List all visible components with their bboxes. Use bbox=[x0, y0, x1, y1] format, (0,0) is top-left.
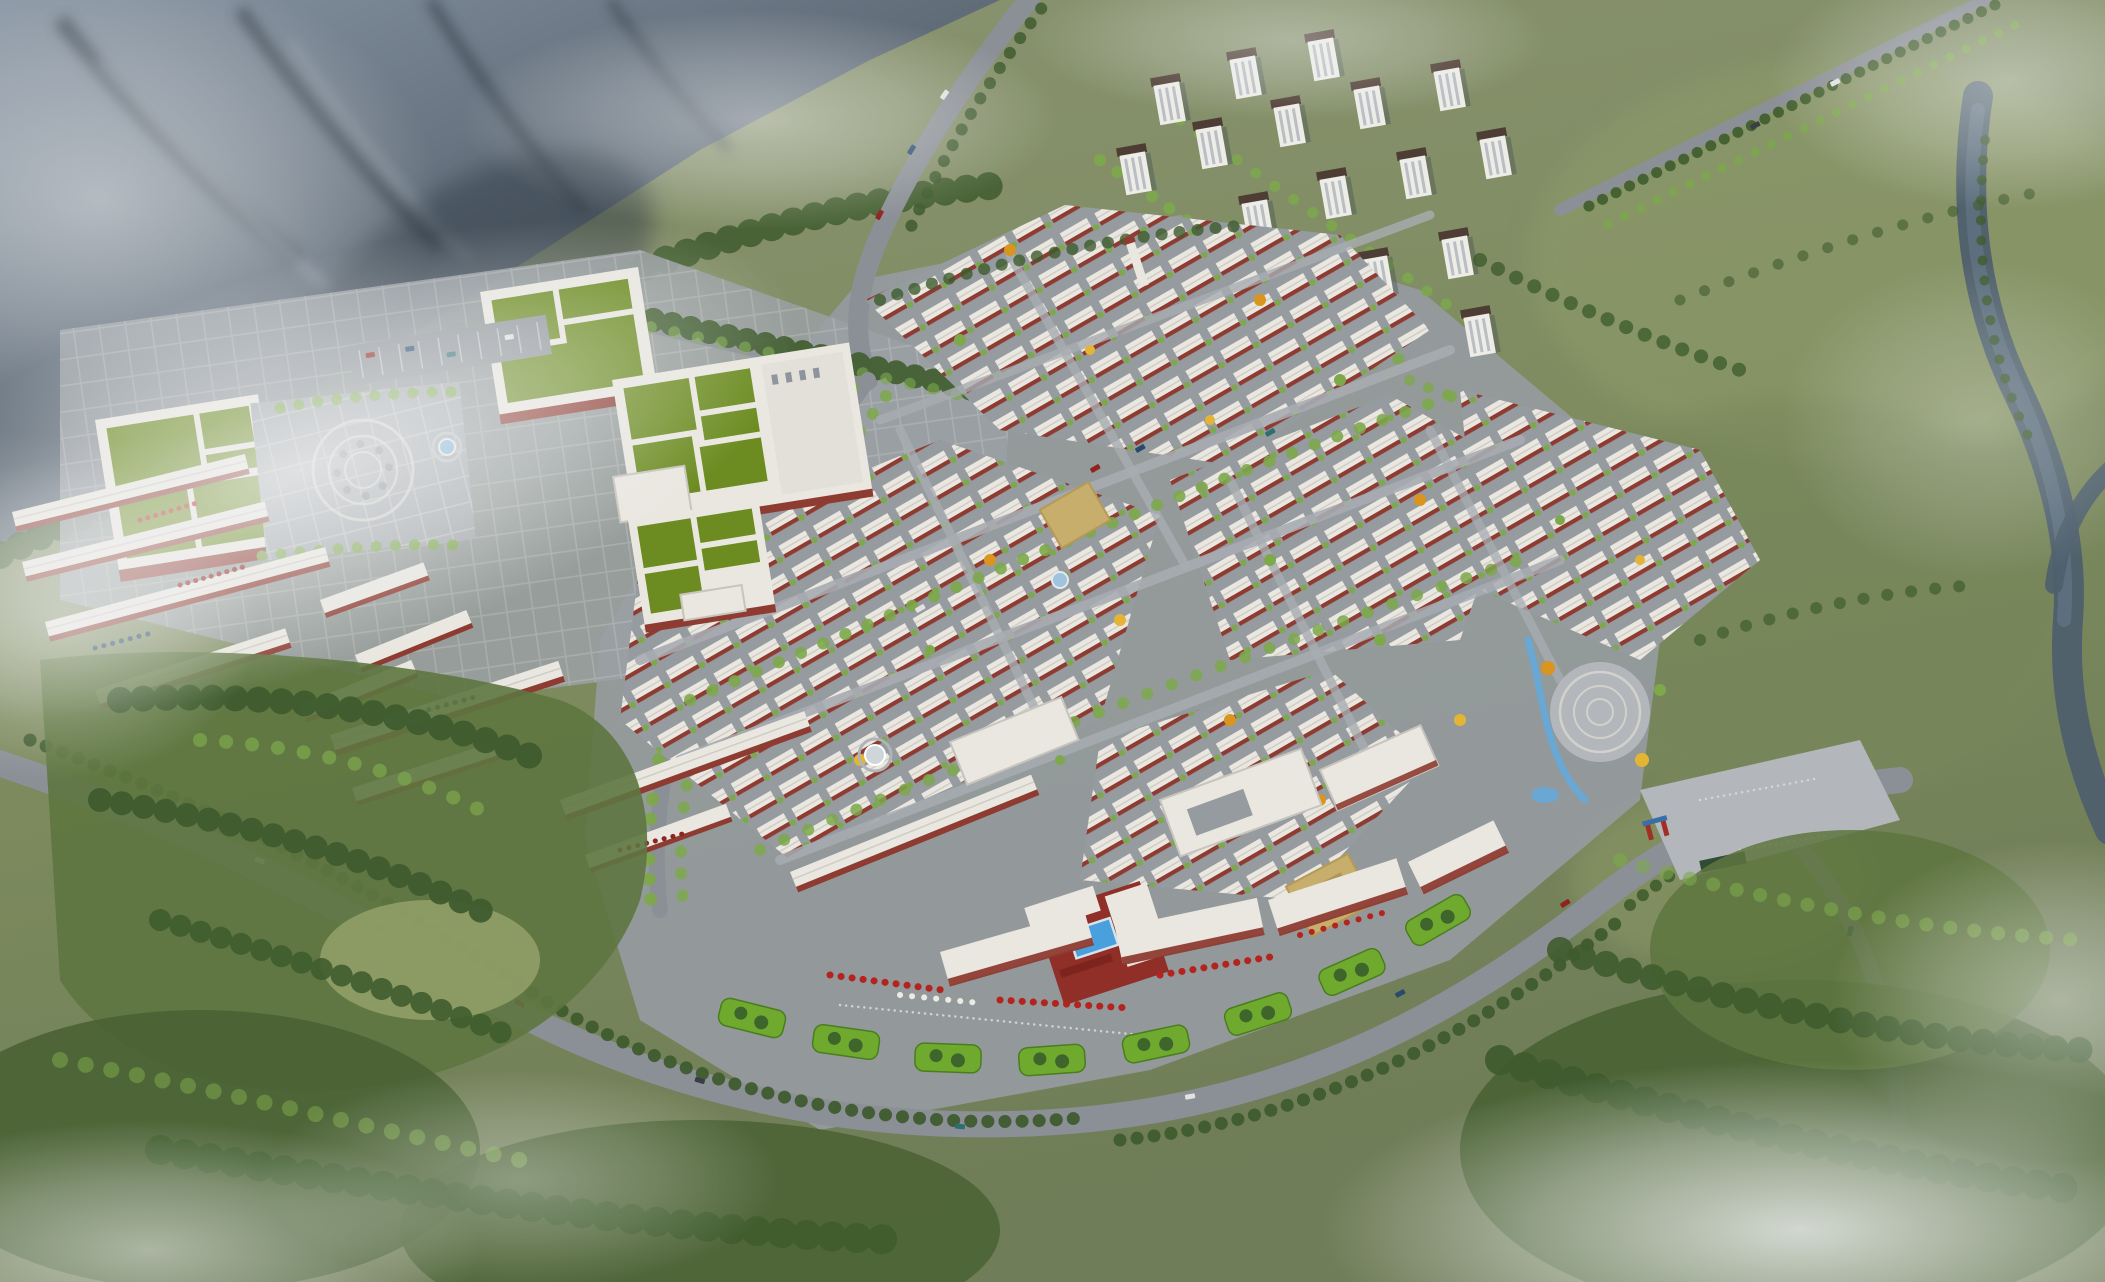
aerial-town-rendering bbox=[0, 0, 2105, 1282]
sphere-fountain bbox=[1052, 572, 1068, 588]
rendering-canvas bbox=[0, 0, 2105, 1282]
